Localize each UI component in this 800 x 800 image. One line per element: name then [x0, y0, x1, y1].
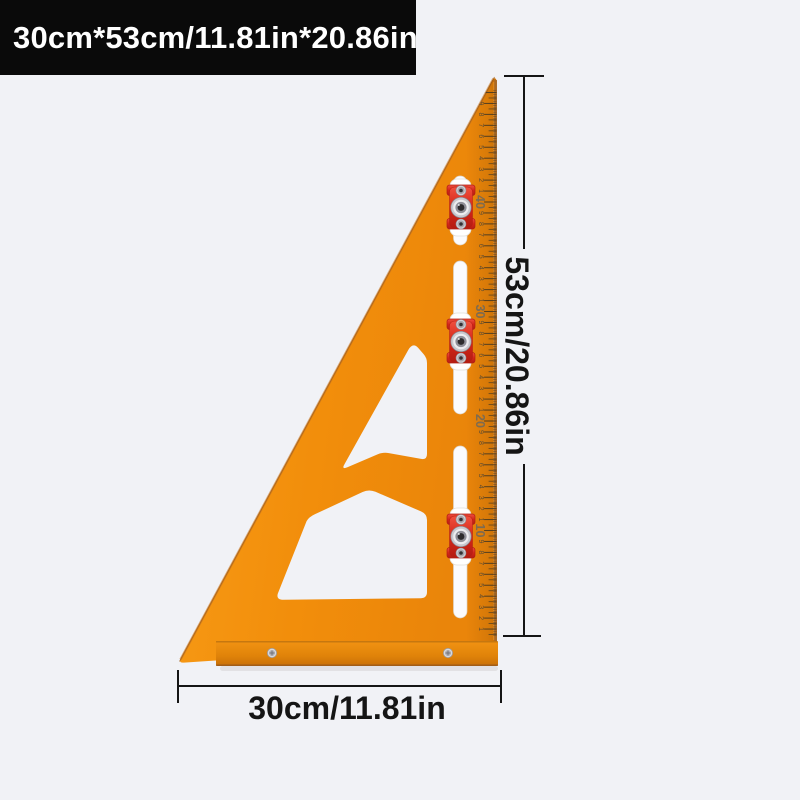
scale-number: 40	[473, 195, 487, 209]
scale-number: 4	[477, 375, 484, 379]
scale-number: 5	[477, 255, 484, 259]
knob-small-screw-hole	[459, 551, 463, 555]
scale-number: 1	[477, 408, 484, 412]
scale-number: 7	[477, 452, 484, 456]
scale-number: 7	[477, 233, 484, 237]
dimension-vertical-label: 53cm/20.86in	[499, 256, 535, 455]
slider-knob	[447, 179, 475, 236]
scale-number: 3	[477, 167, 484, 171]
scale-number: 1	[477, 627, 484, 631]
scale-number: 6	[477, 572, 484, 576]
triangle-ruler-photo: 1234567891012345678920123456789301234567…	[0, 0, 800, 800]
product-image: 30cm*53cm/11.81in*20.86in	[0, 0, 800, 800]
scale-number: 7	[477, 342, 484, 346]
scale-number: 8	[477, 331, 484, 335]
knob-small-screw-hole	[459, 222, 463, 226]
scale-number: 4	[477, 156, 484, 160]
base-fence	[216, 641, 498, 666]
scale-number: 4	[477, 594, 484, 598]
scale-number: 3	[477, 386, 484, 390]
scale-number: 7	[477, 123, 484, 127]
scale-number: 6	[477, 353, 484, 357]
scale-number: 2	[477, 288, 484, 292]
scale-number: 1	[477, 189, 484, 193]
scale-number: 1	[477, 518, 484, 522]
base-fence-bar	[216, 641, 498, 666]
scale-number: 4	[477, 266, 484, 270]
scale-number: 9	[477, 430, 484, 434]
scale-number: 3	[477, 277, 484, 281]
scale-number: 2	[477, 616, 484, 620]
scale-number: 8	[477, 112, 484, 116]
scale-number: 6	[477, 244, 484, 248]
knob-screw-highlight	[458, 338, 460, 340]
scale-number: 6	[477, 463, 484, 467]
scale-number: 4	[477, 485, 484, 489]
knob-small-screw-hole	[459, 189, 463, 193]
scale-number: 7	[477, 561, 484, 565]
base-shadow	[220, 666, 498, 671]
slider-knob	[447, 508, 475, 565]
scale-number: 2	[477, 178, 484, 182]
scale-number: 5	[477, 145, 484, 149]
scale-number: 5	[477, 583, 484, 587]
scale-number: 30	[473, 305, 487, 319]
knob-small-screw-hole	[459, 356, 463, 360]
scale-number: 8	[477, 550, 484, 554]
scale-number: 20	[473, 414, 487, 428]
scale-number: 2	[477, 507, 484, 511]
dimension-horizontal-label: 30cm/11.81in	[248, 690, 445, 726]
knob-screw-highlight	[458, 204, 460, 206]
scale-number: 8	[477, 441, 484, 445]
scale-number: 5	[477, 474, 484, 478]
slider-knob	[447, 313, 475, 370]
scale-number: 9	[477, 320, 484, 324]
scale-number: 8	[477, 222, 484, 226]
scale-number: 9	[477, 539, 484, 543]
scale-number: 10	[473, 524, 487, 538]
knob-small-screw-hole	[459, 518, 463, 522]
knob-screw-highlight	[458, 533, 460, 535]
scale-number: 9	[477, 211, 484, 215]
knob-small-screw-hole	[459, 323, 463, 327]
scale-number: 3	[477, 496, 484, 500]
scale-number: 6	[477, 134, 484, 138]
scale-number: 5	[477, 364, 484, 368]
scale-number: 1	[477, 299, 484, 303]
scale-number: 3	[477, 605, 484, 609]
scale-number: 2	[477, 397, 484, 401]
